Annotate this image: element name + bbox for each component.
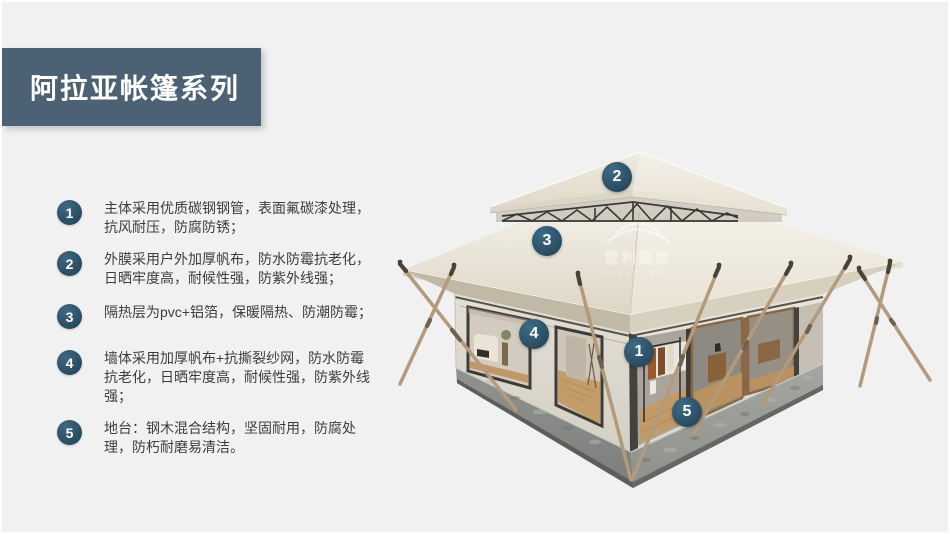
feature-text: 地台：钢木混合结构，坚固耐用，防腐处理，防朽耐磨易清洁。 bbox=[104, 419, 372, 457]
feature-item-4: 4 墙体采用加厚帆布+抗撕裂纱网，防水防霉抗老化，日晒牢度高，耐候性强，防紫外线… bbox=[57, 349, 387, 406]
feature-text: 外膜采用户外加厚帆布，防水防霉抗老化，日晒牢度高，耐候性强，防紫外线强； bbox=[104, 250, 372, 288]
feature-item-1: 1 主体采用优质碳钢钢管，表面氟碳漆处理，抗风耐压，防腐防锈； bbox=[57, 199, 387, 237]
feature-item-2: 2 外膜采用户外加厚帆布，防水防霉抗老化，日晒牢度高，耐候性强，防紫外线强； bbox=[57, 250, 387, 288]
diagram-callout-2: 2 bbox=[602, 162, 632, 192]
feature-number-badge: 3 bbox=[57, 304, 82, 329]
feature-number-badge: 1 bbox=[57, 200, 82, 225]
product-slide: 阿拉亚帐篷系列 1 主体采用优质碳钢钢管，表面氟碳漆处理，抗风耐压，防腐防锈； … bbox=[0, 0, 950, 534]
tent-drawing: 雪利篷房 XUELI TENT bbox=[390, 130, 950, 534]
diagram-callout-1: 1 bbox=[624, 337, 654, 367]
page-title: 阿拉亚帐篷系列 bbox=[2, 67, 240, 107]
diagram-callout-5: 5 bbox=[672, 397, 702, 427]
feature-item-3: 3 隔热层为pvc+铝箔，保暖隔热、防潮防霉； bbox=[57, 303, 387, 329]
watermark-en: XUELI TENT bbox=[603, 271, 673, 278]
tent-illustration: 雪利篷房 XUELI TENT bbox=[390, 130, 950, 534]
title-banner: 阿拉亚帐篷系列 bbox=[2, 48, 261, 126]
feature-number-badge: 5 bbox=[57, 420, 82, 445]
feature-text: 隔热层为pvc+铝箔，保暖隔热、防潮防霉； bbox=[104, 303, 372, 322]
feature-number-badge: 4 bbox=[57, 350, 82, 375]
feature-text: 主体采用优质碳钢钢管，表面氟碳漆处理，抗风耐压，防腐防锈； bbox=[104, 199, 372, 237]
feature-item-5: 5 地台：钢木混合结构，坚固耐用，防腐处理，防朽耐磨易清洁。 bbox=[57, 419, 387, 457]
diagram-callout-4: 4 bbox=[519, 319, 549, 349]
feature-text: 墙体采用加厚帆布+抗撕裂纱网，防水防霉抗老化，日晒牢度高，耐候性强，防紫外线强； bbox=[104, 349, 372, 406]
diagram-callout-3: 3 bbox=[532, 226, 562, 256]
feature-number-badge: 2 bbox=[57, 251, 82, 276]
watermark-cn: 雪利篷房 bbox=[604, 249, 672, 267]
